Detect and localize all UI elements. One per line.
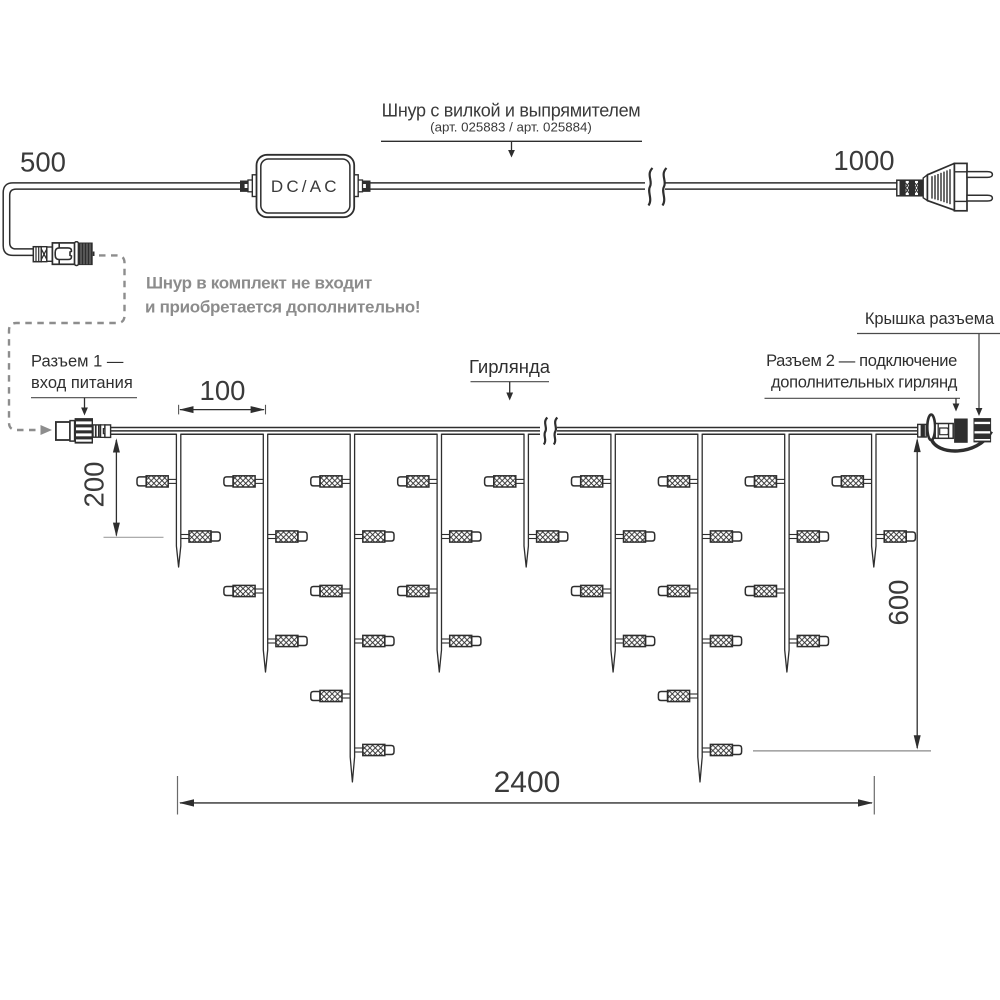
svg-text:Крышка разъема: Крышка разъема bbox=[865, 310, 995, 328]
svg-text:2400: 2400 bbox=[494, 766, 561, 799]
svg-text:Шнур с вилкой и выпрямителем: Шнур с вилкой и выпрямителем bbox=[382, 101, 641, 121]
svg-text:и приобретается дополнительно!: и приобретается дополнительно! bbox=[145, 298, 420, 317]
svg-text:Гирлянда: Гирлянда bbox=[469, 356, 551, 377]
svg-text:500: 500 bbox=[20, 147, 66, 178]
svg-text:100: 100 bbox=[200, 375, 246, 406]
svg-text:600: 600 bbox=[883, 580, 914, 626]
svg-text:200: 200 bbox=[79, 462, 110, 508]
svg-text:DC/AC: DC/AC bbox=[271, 177, 340, 196]
svg-text:дополнительных гирлянд: дополнительных гирлянд bbox=[771, 374, 958, 392]
svg-text:Шнур в комплект не входит: Шнур в комплект не входит bbox=[146, 274, 372, 293]
svg-text:вход питания: вход питания bbox=[31, 374, 133, 392]
svg-text:Разъем 2 — подключение: Разъем 2 — подключение bbox=[766, 352, 957, 370]
svg-text:1000: 1000 bbox=[833, 145, 894, 176]
svg-text:Разъем 1 —: Разъем 1 — bbox=[31, 353, 124, 371]
svg-text:(арт. 025883 / арт. 025884): (арт. 025883 / арт. 025884) bbox=[430, 120, 592, 135]
